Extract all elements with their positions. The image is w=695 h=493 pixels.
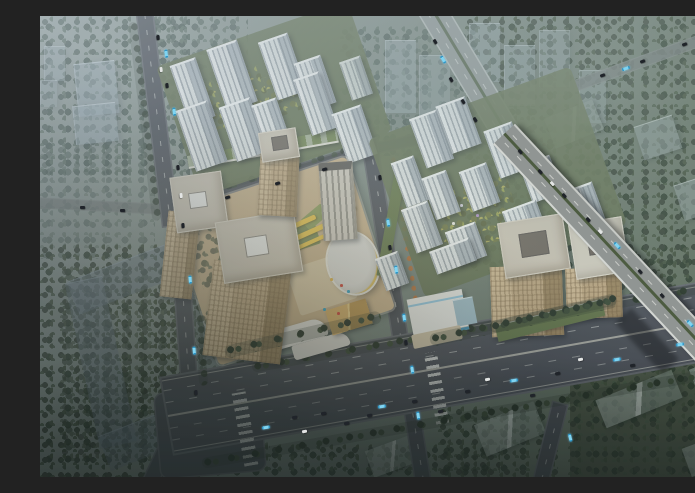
- bus: [262, 425, 270, 430]
- bus: [410, 365, 415, 373]
- bus: [622, 66, 631, 72]
- car: [465, 390, 470, 393]
- car: [166, 83, 169, 88]
- bus: [164, 50, 168, 58]
- bus: [172, 108, 176, 116]
- car: [586, 217, 591, 222]
- car: [638, 269, 643, 274]
- car: [182, 223, 185, 228]
- bus: [613, 357, 621, 362]
- car: [562, 193, 567, 198]
- bus: [402, 313, 407, 321]
- bus: [676, 342, 684, 347]
- car: [195, 390, 198, 395]
- car: [518, 149, 523, 154]
- car: [177, 165, 180, 170]
- vehicle-layer: [40, 16, 695, 477]
- bus: [567, 433, 572, 442]
- bus: [386, 218, 391, 226]
- car: [660, 293, 665, 298]
- car: [302, 430, 307, 433]
- car: [640, 59, 645, 63]
- car: [598, 229, 603, 234]
- car: [379, 175, 382, 180]
- car: [578, 358, 583, 361]
- car: [600, 73, 605, 77]
- car: [485, 378, 490, 381]
- car: [275, 181, 280, 185]
- car: [344, 422, 349, 425]
- bus: [416, 411, 421, 419]
- bus: [613, 242, 621, 250]
- car: [433, 39, 438, 44]
- car: [160, 67, 163, 72]
- car: [555, 372, 560, 375]
- car: [225, 195, 230, 199]
- car: [120, 209, 125, 212]
- car: [367, 414, 372, 417]
- bus: [686, 320, 694, 328]
- car: [538, 169, 543, 174]
- car: [630, 364, 635, 367]
- bus: [188, 276, 192, 284]
- car: [405, 340, 408, 345]
- car: [389, 245, 392, 250]
- bus: [378, 404, 386, 409]
- car: [461, 99, 466, 104]
- car: [180, 193, 183, 198]
- car: [292, 416, 297, 419]
- car: [412, 400, 417, 403]
- bus: [394, 265, 399, 273]
- car: [322, 167, 327, 171]
- bus: [510, 378, 518, 383]
- bus: [439, 55, 446, 64]
- car: [438, 410, 443, 413]
- car: [157, 35, 160, 40]
- car: [321, 412, 326, 415]
- car: [80, 206, 85, 209]
- car: [449, 77, 454, 82]
- car: [530, 394, 535, 397]
- car: [473, 117, 478, 122]
- car: [682, 42, 687, 46]
- bus: [192, 347, 196, 355]
- aerial-rendering: Bird's-eye architectural rendering: a co…: [40, 16, 695, 477]
- car: [550, 181, 555, 186]
